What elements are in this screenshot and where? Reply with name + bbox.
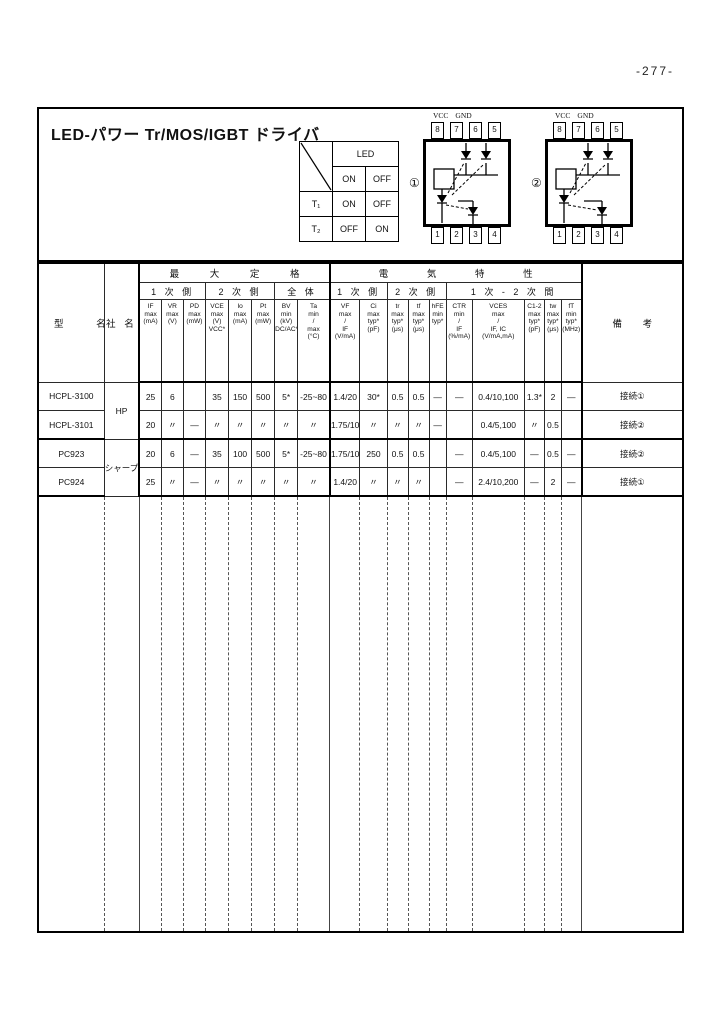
table-cell: 30* <box>360 382 387 411</box>
empty-cell <box>582 496 683 932</box>
table-cell: 0.5 <box>544 411 561 440</box>
diagonal-cell <box>300 142 333 192</box>
spec-table-body: HCPL-3100HP256351505005*-25~801.4/2030*0… <box>38 382 683 932</box>
table-cell: 0.4/5,100 <box>472 439 524 468</box>
col-header: VCES max / IF, IC (V/mA,mA) <box>472 300 524 383</box>
diagonal-line <box>300 142 332 191</box>
table-cell: — <box>561 439 581 468</box>
table-cell: — <box>446 439 472 468</box>
table-cell: 20 <box>139 439 161 468</box>
pin-box: 3 <box>469 227 482 244</box>
col-header: BV min (kV) DC/AC* <box>275 300 298 383</box>
table-cell: 35 <box>205 382 228 411</box>
table-cell: — <box>446 468 472 497</box>
state-on-cell: ON <box>333 167 366 192</box>
table-cell <box>561 411 581 440</box>
col-header: tr max typ* (μs) <box>387 300 408 383</box>
table-cell: 〃 <box>360 468 387 497</box>
table-cell: 25 <box>139 468 161 497</box>
table-row: HCPL-3100HP256351505005*-25~801.4/2030*0… <box>38 382 683 411</box>
empty-cell <box>360 496 387 932</box>
table-cell: 〃 <box>408 411 429 440</box>
pin-box: 5 <box>488 122 501 139</box>
table-cell: 35 <box>205 439 228 468</box>
vcc-label: VCC <box>555 111 570 122</box>
table-cell: — <box>183 439 205 468</box>
table-cell <box>183 382 205 411</box>
connection-number: ① <box>409 176 420 190</box>
table-cell: 500 <box>252 382 275 411</box>
table-cell: 〃 <box>229 468 252 497</box>
table-cell: HCPL-3101 <box>38 411 104 440</box>
table-cell: シャープ <box>104 439 139 496</box>
col-header: IF max (mA) <box>139 300 161 383</box>
table-cell <box>429 468 446 497</box>
table-cell: 接続① <box>582 468 683 497</box>
empty-cell <box>139 496 161 932</box>
empty-cell <box>298 496 330 932</box>
table-cell <box>446 411 472 440</box>
t1-off: OFF <box>366 192 399 217</box>
table-cell: HP <box>104 382 139 439</box>
table-cell: 1.3* <box>524 382 544 411</box>
table-cell: -25~80 <box>298 382 330 411</box>
top-pins: 8 7 6 5 <box>545 122 645 139</box>
gnd-label: GND <box>455 111 471 122</box>
pin-box: 8 <box>431 122 444 139</box>
header-panel: LED-パワー Tr/MOS/IGBT ドライバ LED ON OFF T₁ O… <box>37 107 684 262</box>
table-cell: — <box>561 468 581 497</box>
pin-box: 6 <box>591 122 604 139</box>
col-header: VCE max (V) VCC* <box>205 300 228 383</box>
table-cell: — <box>183 468 205 497</box>
ic-package: ② <box>545 139 633 227</box>
col-header: Ci max typ* (pF) <box>360 300 387 383</box>
col-header: C1-2 max typ* (pF) <box>524 300 544 383</box>
internal-schematic-icon <box>428 143 508 225</box>
table-cell: 〃 <box>387 468 408 497</box>
supply-labels: VCC GND <box>545 111 645 122</box>
table-cell: — <box>429 382 446 411</box>
table-cell: 〃 <box>205 468 228 497</box>
table-cell: 〃 <box>387 411 408 440</box>
subgroup-primary: 1 次 側 <box>139 283 205 300</box>
table-cell: 〃 <box>161 468 183 497</box>
table-cell: — <box>561 382 581 411</box>
table-cell: -25~80 <box>298 439 330 468</box>
table-cell: 〃 <box>408 468 429 497</box>
table-cell: 〃 <box>298 468 330 497</box>
empty-cell <box>387 496 408 932</box>
table-cell: 25 <box>139 382 161 411</box>
table-cell: 0.5 <box>544 439 561 468</box>
empty-cell <box>429 496 446 932</box>
table-cell: 5* <box>275 382 298 411</box>
table-cell: 〃 <box>252 411 275 440</box>
col-header: Pt max (mW) <box>252 300 275 383</box>
table-cell: 500 <box>252 439 275 468</box>
subgroup-secondary: 2 次 側 <box>205 283 274 300</box>
empty-cell <box>252 496 275 932</box>
table-cell: — <box>524 468 544 497</box>
table-cell: 〃 <box>298 411 330 440</box>
empty-cell <box>544 496 561 932</box>
empty-cell <box>205 496 228 932</box>
state-off-cell: OFF <box>366 167 399 192</box>
table-cell: 〃 <box>205 411 228 440</box>
empty-cell <box>229 496 252 932</box>
col-header: hFE min typ* <box>429 300 446 383</box>
table-cell: PC923 <box>38 439 104 468</box>
table-cell: 〃 <box>275 468 298 497</box>
pin-box: 2 <box>450 227 463 244</box>
table-cell: — <box>183 411 205 440</box>
pin-box: 2 <box>572 227 585 244</box>
table-cell: 2 <box>544 468 561 497</box>
page-number: -277- <box>636 64 674 78</box>
table-cell: 〃 <box>229 411 252 440</box>
pin-box: 4 <box>488 227 501 244</box>
table-cell: 接続① <box>582 382 683 411</box>
col-header: VF max / IF (V/mA) <box>330 300 360 383</box>
pin-box: 1 <box>431 227 444 244</box>
col-header: CTR min / IF (%/mA) <box>446 300 472 383</box>
package-diagram-1: VCC GND 8 7 6 5 ① <box>423 111 523 244</box>
pin-box: 7 <box>450 122 463 139</box>
table-cell: 2.4/10,200 <box>472 468 524 497</box>
bottom-pins: 1 2 3 4 <box>423 227 523 244</box>
col-header: tw max typ* (μs) <box>544 300 561 383</box>
table-cell: 接続② <box>582 439 683 468</box>
group-header-electrical: 電 気 特 性 <box>330 263 582 283</box>
table-cell: 〃 <box>275 411 298 440</box>
package-diagram-2: VCC GND 8 7 6 5 ② <box>545 111 645 244</box>
t1-on: ON <box>333 192 366 217</box>
led-logic-table: LED ON OFF T₁ ON OFF T₂ OFF ON <box>299 141 399 242</box>
t1-label: T₁ <box>300 192 333 217</box>
col-header-remarks: 備 考 <box>582 263 683 382</box>
empty-cell <box>38 496 104 932</box>
table-cell: 0.4/10,100 <box>472 382 524 411</box>
table-cell: — <box>524 439 544 468</box>
vcc-label: VCC <box>433 111 448 122</box>
table-cell: — <box>446 382 472 411</box>
pin-box: 1 <box>553 227 566 244</box>
table-cell: 〃 <box>524 411 544 440</box>
col-header: fT min typ* (MHz) <box>561 300 581 383</box>
top-pins: 8 7 6 5 <box>423 122 523 139</box>
pin-box: 6 <box>469 122 482 139</box>
connection-number: ② <box>531 176 542 190</box>
col-header-model: 型 名 <box>38 263 104 382</box>
col-header: PD max (mW) <box>183 300 205 383</box>
pin-box: 8 <box>553 122 566 139</box>
pin-box: 5 <box>610 122 623 139</box>
table-cell: 5* <box>275 439 298 468</box>
table-cell: 6 <box>161 382 183 411</box>
table-cell: 0.4/5,100 <box>472 411 524 440</box>
t2-label: T₂ <box>300 217 333 242</box>
pin-box: 3 <box>591 227 604 244</box>
table-row: PC923シャープ206—351005005*-25~801.75/102500… <box>38 439 683 468</box>
table-cell: 1.4/20 <box>330 468 360 497</box>
empty-cell <box>330 496 360 932</box>
empty-cell <box>524 496 544 932</box>
table-cell: 0.5 <box>408 439 429 468</box>
page-title: LED-パワー Tr/MOS/IGBT ドライバ <box>51 121 320 145</box>
empty-cell <box>446 496 472 932</box>
internal-schematic-icon <box>550 143 630 225</box>
empty-cell <box>408 496 429 932</box>
col-header-company: 社 名 <box>104 263 139 382</box>
table-cell: 〃 <box>252 468 275 497</box>
table-cell: 1.4/20 <box>330 382 360 411</box>
table-cell <box>429 439 446 468</box>
table-cell: PC924 <box>38 468 104 497</box>
pin-box: 4 <box>610 227 623 244</box>
table-cell: 150 <box>229 382 252 411</box>
subgroup-secondary-elec: 2 次 側 <box>387 283 446 300</box>
col-header: VR max (V) <box>161 300 183 383</box>
t2-off: ON <box>366 217 399 242</box>
subgroup-overall: 全 体 <box>275 283 330 300</box>
led-header-cell: LED <box>333 142 399 167</box>
table-cell: — <box>429 411 446 440</box>
ic-package: ① <box>423 139 511 227</box>
empty-cell <box>161 496 183 932</box>
col-header: Ta min / max (°C) <box>298 300 330 383</box>
table-cell: HCPL-3100 <box>38 382 104 411</box>
table-cell: 接続② <box>582 411 683 440</box>
empty-cell <box>104 496 139 932</box>
supply-labels: VCC GND <box>423 111 523 122</box>
table-cell: 20 <box>139 411 161 440</box>
bottom-pins: 1 2 3 4 <box>545 227 645 244</box>
gnd-label: GND <box>577 111 593 122</box>
subgroup-isolation: 1 次 - 2 次 間 <box>446 283 581 300</box>
empty-cell <box>561 496 581 932</box>
table-cell: 〃 <box>360 411 387 440</box>
table-cell: 100 <box>229 439 252 468</box>
subgroup-primary-elec: 1 次 側 <box>330 283 387 300</box>
table-cell: 6 <box>161 439 183 468</box>
group-header-max-ratings: 最 大 定 格 <box>139 263 330 283</box>
table-cell: 1.75/10 <box>330 411 360 440</box>
t2-on: OFF <box>333 217 366 242</box>
spec-table: 型 名 社 名 最 大 定 格 電 気 特 性 備 考 1 次 側 2 次 側 … <box>37 262 684 933</box>
empty-cell <box>275 496 298 932</box>
empty-cell <box>183 496 205 932</box>
table-cell: 0.5 <box>387 439 408 468</box>
col-header: tf max typ* (μs) <box>408 300 429 383</box>
empty-cell <box>472 496 524 932</box>
pin-box: 7 <box>572 122 585 139</box>
table-cell: 250 <box>360 439 387 468</box>
table-cell: 1.75/10 <box>330 439 360 468</box>
col-header: Io max (mA) <box>229 300 252 383</box>
table-cell: 0.5 <box>408 382 429 411</box>
table-cell: 〃 <box>161 411 183 440</box>
empty-ruled-region <box>38 496 683 932</box>
table-cell: 2 <box>544 382 561 411</box>
scanned-datasheet-page: -277- LED-パワー Tr/MOS/IGBT ドライバ LED ON OF… <box>0 0 720 1012</box>
table-cell: 0.5 <box>387 382 408 411</box>
